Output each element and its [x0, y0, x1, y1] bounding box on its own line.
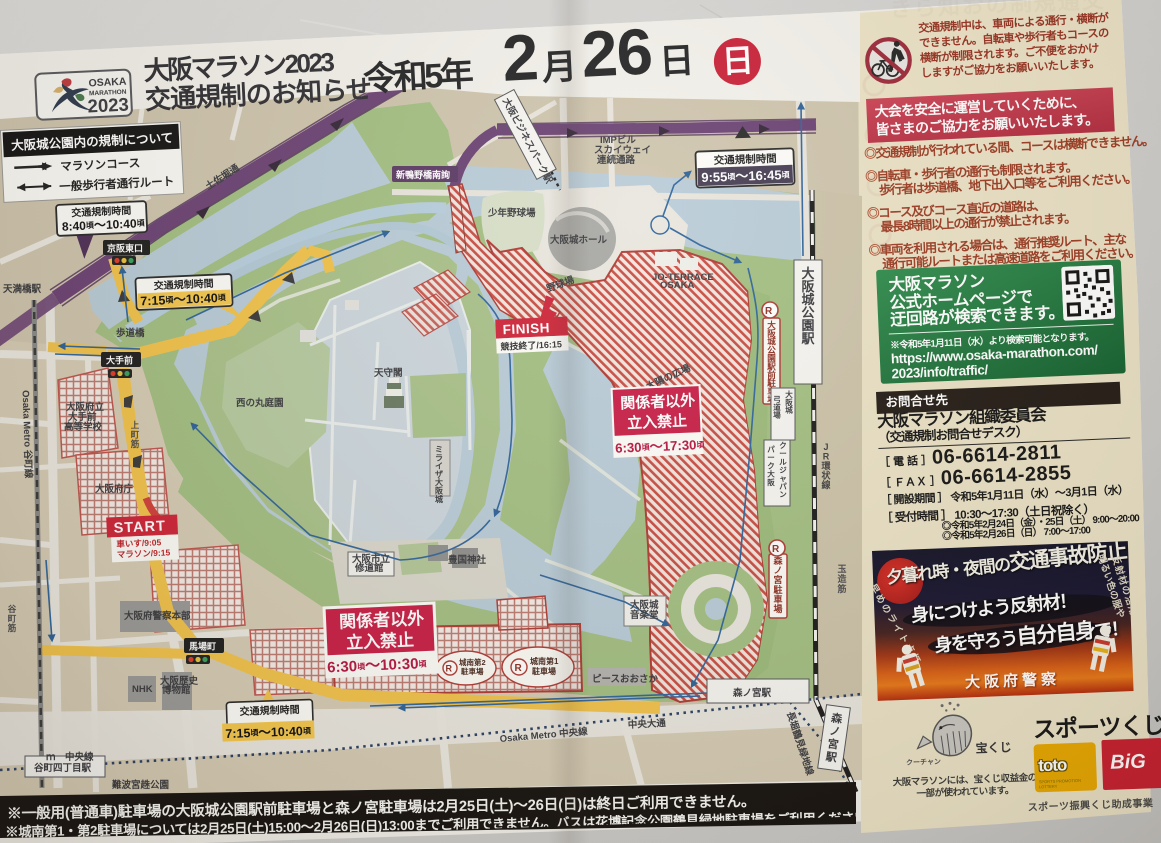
svg-text:高等学校: 高等学校 — [64, 421, 103, 433]
svg-text:NHK: NHK — [132, 684, 153, 695]
svg-text:天満橋駅: 天満橋駅 — [3, 283, 42, 295]
svg-text:京阪東口: 京阪東口 — [107, 243, 143, 254]
svg-text:FINISH: FINISH — [502, 320, 550, 337]
svg-text:弓道場: 弓道場 — [773, 395, 781, 420]
svg-text:修道館: 修道館 — [354, 562, 384, 574]
svg-text:中央大通: 中央大通 — [628, 717, 667, 731]
svg-text:城南第2: 城南第2 — [459, 657, 486, 667]
svg-text:大阪城公園駅: 大阪城公園駅 — [800, 266, 815, 346]
svg-text:OSAKA: OSAKA — [660, 280, 694, 291]
svg-text:OSAKA: OSAKA — [88, 76, 127, 90]
svg-text:西の丸庭園: 西の丸庭園 — [236, 397, 284, 409]
svg-text:馬場町: 馬場町 — [188, 641, 216, 652]
svg-text:ピースおおさか: ピースおおさか — [592, 673, 659, 685]
svg-text:博物館: 博物館 — [162, 684, 191, 696]
svg-text:9:55頃～16:45頃: 9:55頃～16:45頃 — [701, 167, 791, 185]
svg-text:玉造筋: 玉造筋 — [836, 564, 847, 594]
svg-text:大阪城ホール: 大阪城ホール — [550, 234, 608, 246]
svg-text:R: R — [515, 663, 523, 674]
svg-text:森ノ宮駐車場: 森ノ宮駐車場 — [773, 555, 783, 614]
svg-text:パーク大阪: パーク大阪 — [767, 444, 775, 487]
svg-text:谷町四丁目駅: 谷町四丁目駅 — [34, 762, 92, 774]
svg-text:宝くじ: 宝くじ — [975, 739, 1012, 755]
svg-text:音楽堂: 音楽堂 — [630, 609, 659, 621]
svg-text:関係者以外: 関係者以外 — [620, 391, 696, 412]
svg-text:R: R — [765, 306, 773, 317]
svg-text:大阪城: 大阪城 — [785, 389, 793, 415]
svg-text:関係者以外: 関係者以外 — [339, 608, 425, 632]
svg-text:谷町筋: 谷町筋 — [7, 604, 17, 633]
svg-text:天守閣: 天守閣 — [374, 367, 403, 379]
svg-text:森ノ宮駅: 森ノ宮駅 — [733, 687, 772, 699]
svg-text:交通規制時間: 交通規制時間 — [713, 152, 776, 167]
svg-text:駐車場: 駐車場 — [461, 666, 484, 676]
svg-text:クーチャン: クーチャン — [906, 757, 941, 767]
svg-text:連続通路: 連続通路 — [597, 154, 636, 166]
svg-text:大阪府警察本部: 大阪府警察本部 — [124, 610, 191, 622]
svg-text:城南第1: 城南第1 — [530, 656, 559, 666]
svg-text:上町筋: 上町筋 — [130, 420, 140, 449]
svg-text:駐車場: 駐車場 — [532, 666, 556, 676]
svg-text:難波宮趎公園: 難波宮趎公園 — [111, 779, 169, 791]
svg-text:少年野球場: 少年野球場 — [487, 207, 536, 219]
svg-text:ミライザ大阪城: ミライザ大阪城 — [435, 445, 444, 504]
svg-text:R: R — [772, 544, 780, 555]
svg-text:新鴨野橋南詢: 新鴨野橋南詢 — [396, 169, 450, 180]
svg-text:START: START — [113, 518, 166, 536]
svg-text:クールジャパン: クールジャパン — [779, 440, 787, 499]
svg-text:2023: 2023 — [87, 94, 129, 117]
svg-text:立入禁止: 立入禁止 — [627, 412, 688, 433]
svg-text:歩道橋: 歩道橋 — [116, 327, 145, 339]
svg-text:立入禁止: 立入禁止 — [346, 630, 415, 653]
svg-text:大阪府庁: 大阪府庁 — [95, 483, 134, 495]
svg-text:豊国神社: 豊国神社 — [448, 554, 487, 566]
svg-text:R: R — [446, 664, 453, 674]
svg-text:大手前: 大手前 — [106, 355, 133, 366]
svg-text:ｍ 中央線: ｍ 中央線 — [46, 751, 94, 763]
